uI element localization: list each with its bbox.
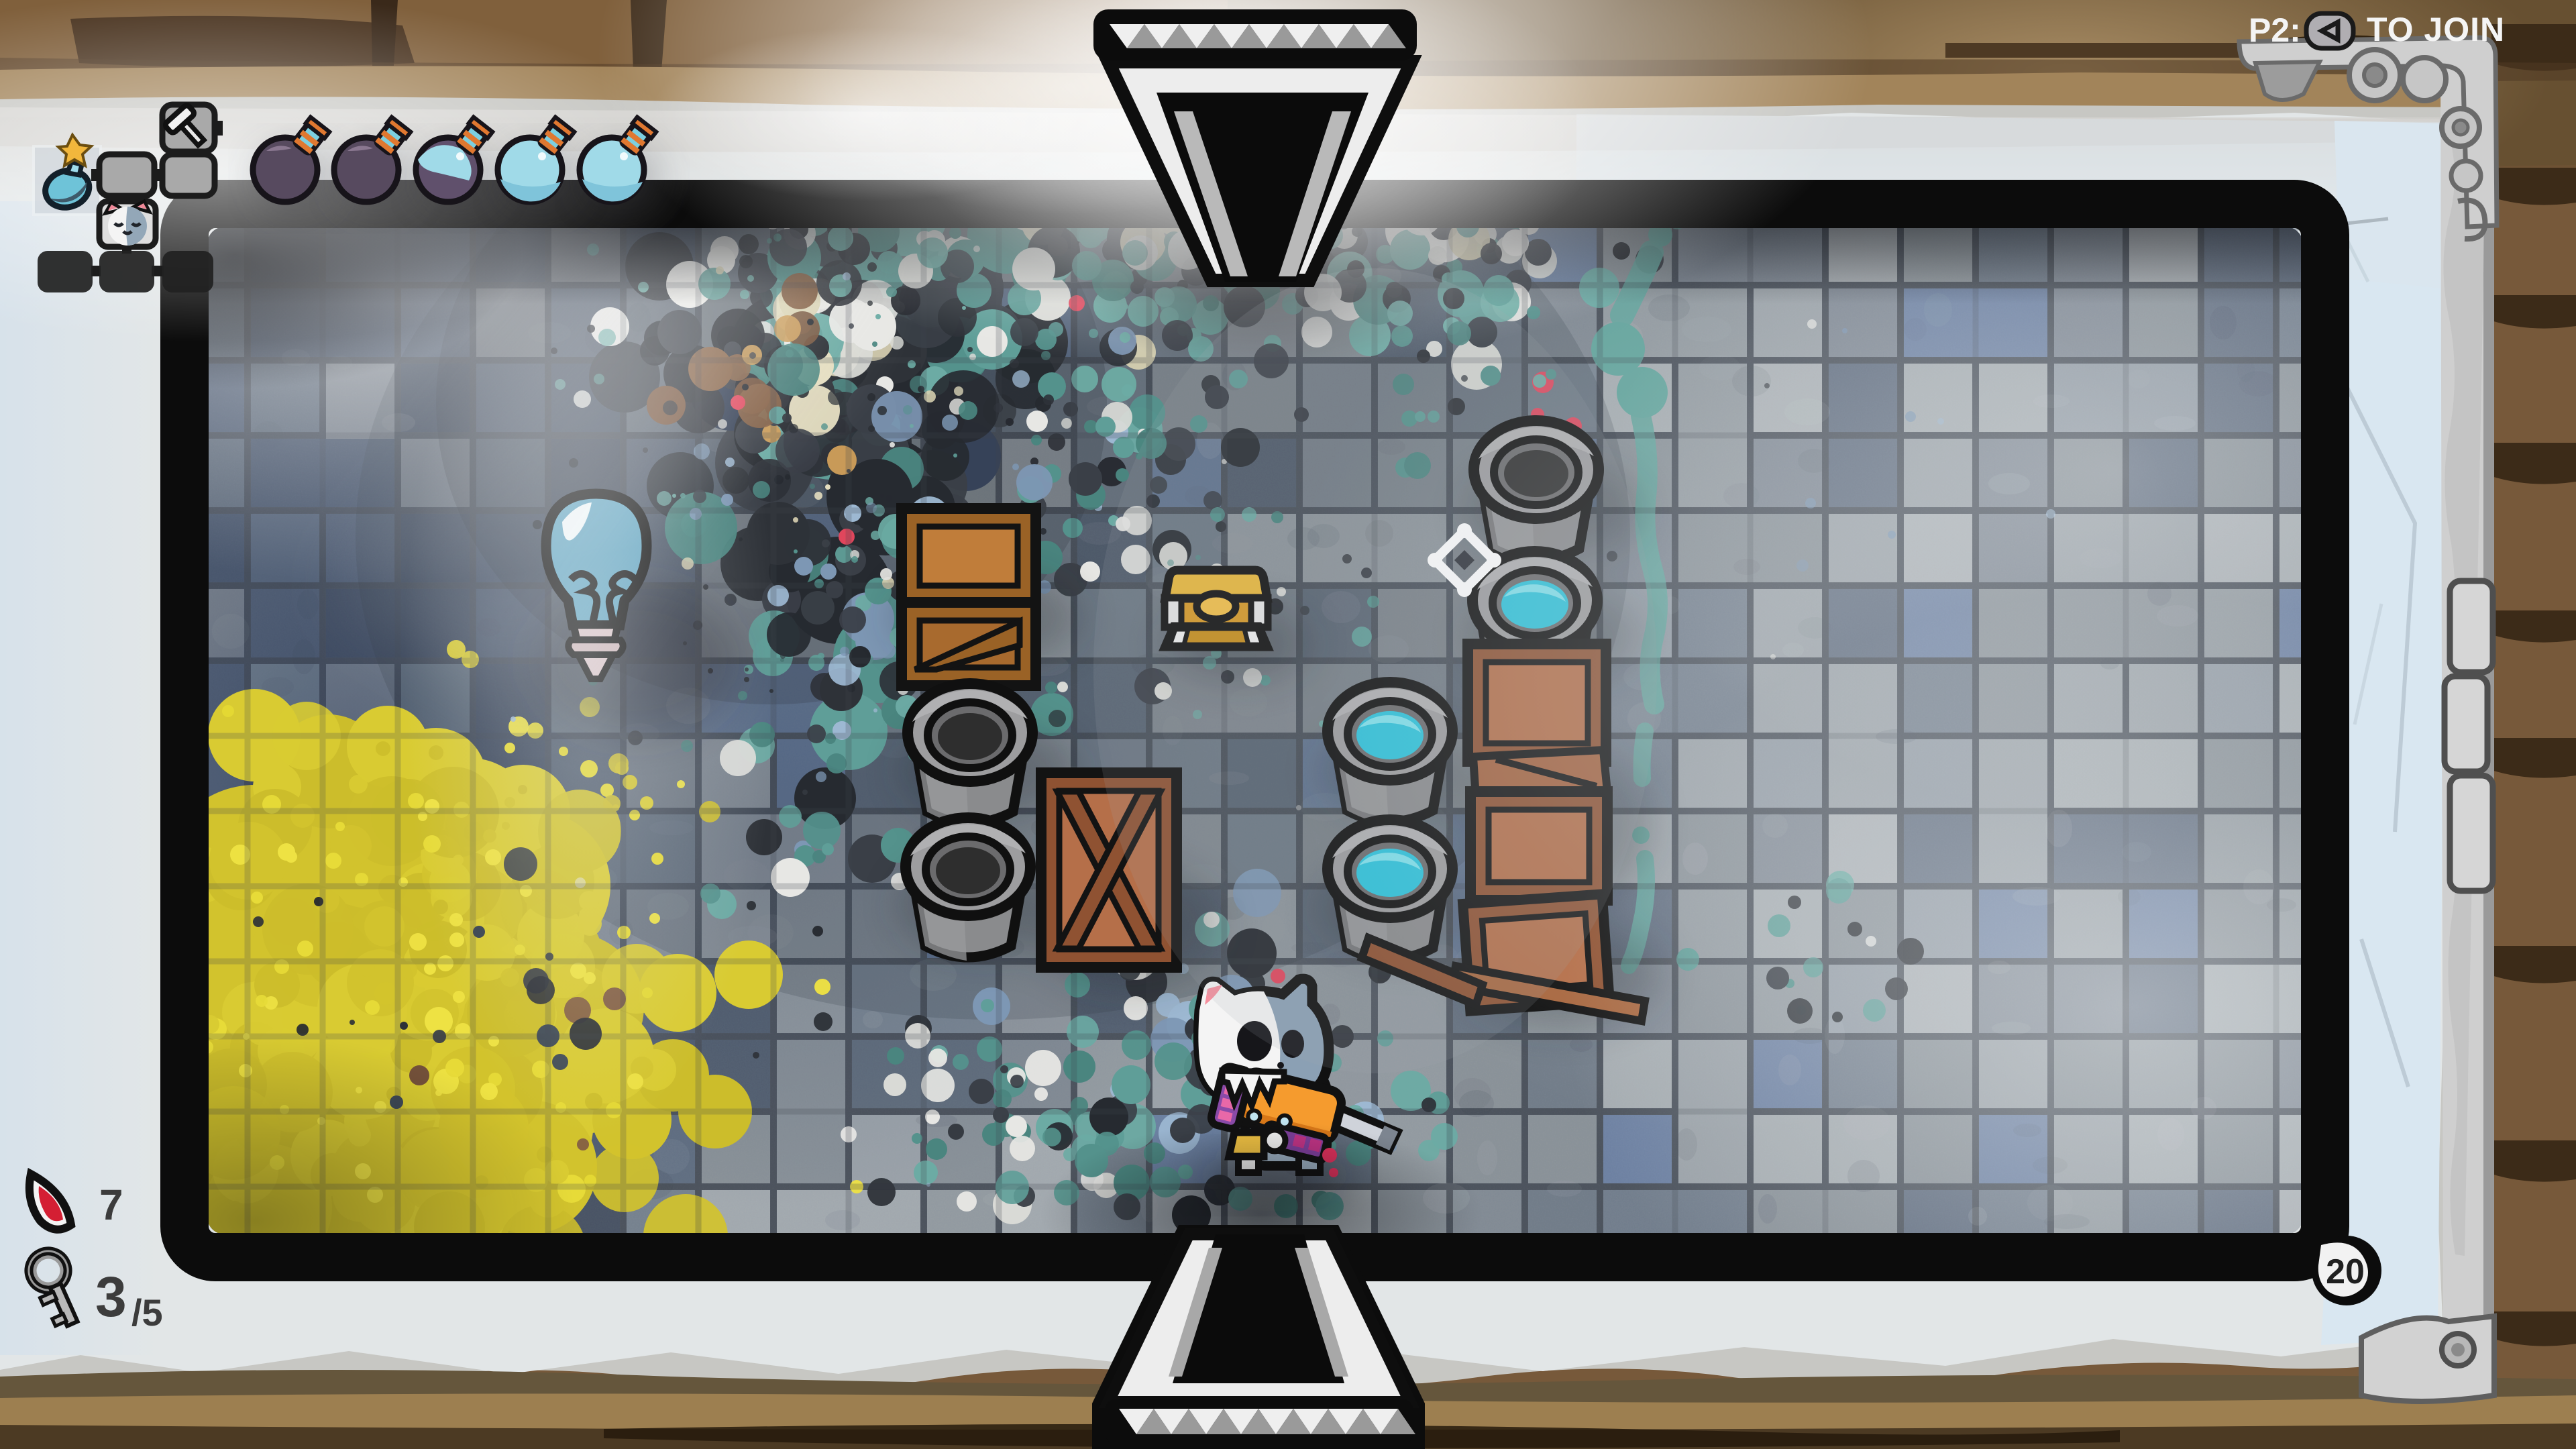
svg-text:20: 20 [2326, 1252, 2365, 1291]
svg-text:3: 3 [95, 1265, 127, 1328]
svg-text:P2:: P2: [2249, 11, 2301, 49]
svg-text:TO JOIN: TO JOIN [2367, 11, 2505, 48]
svg-text:/5: /5 [131, 1291, 163, 1334]
svg-text:7: 7 [99, 1181, 123, 1229]
